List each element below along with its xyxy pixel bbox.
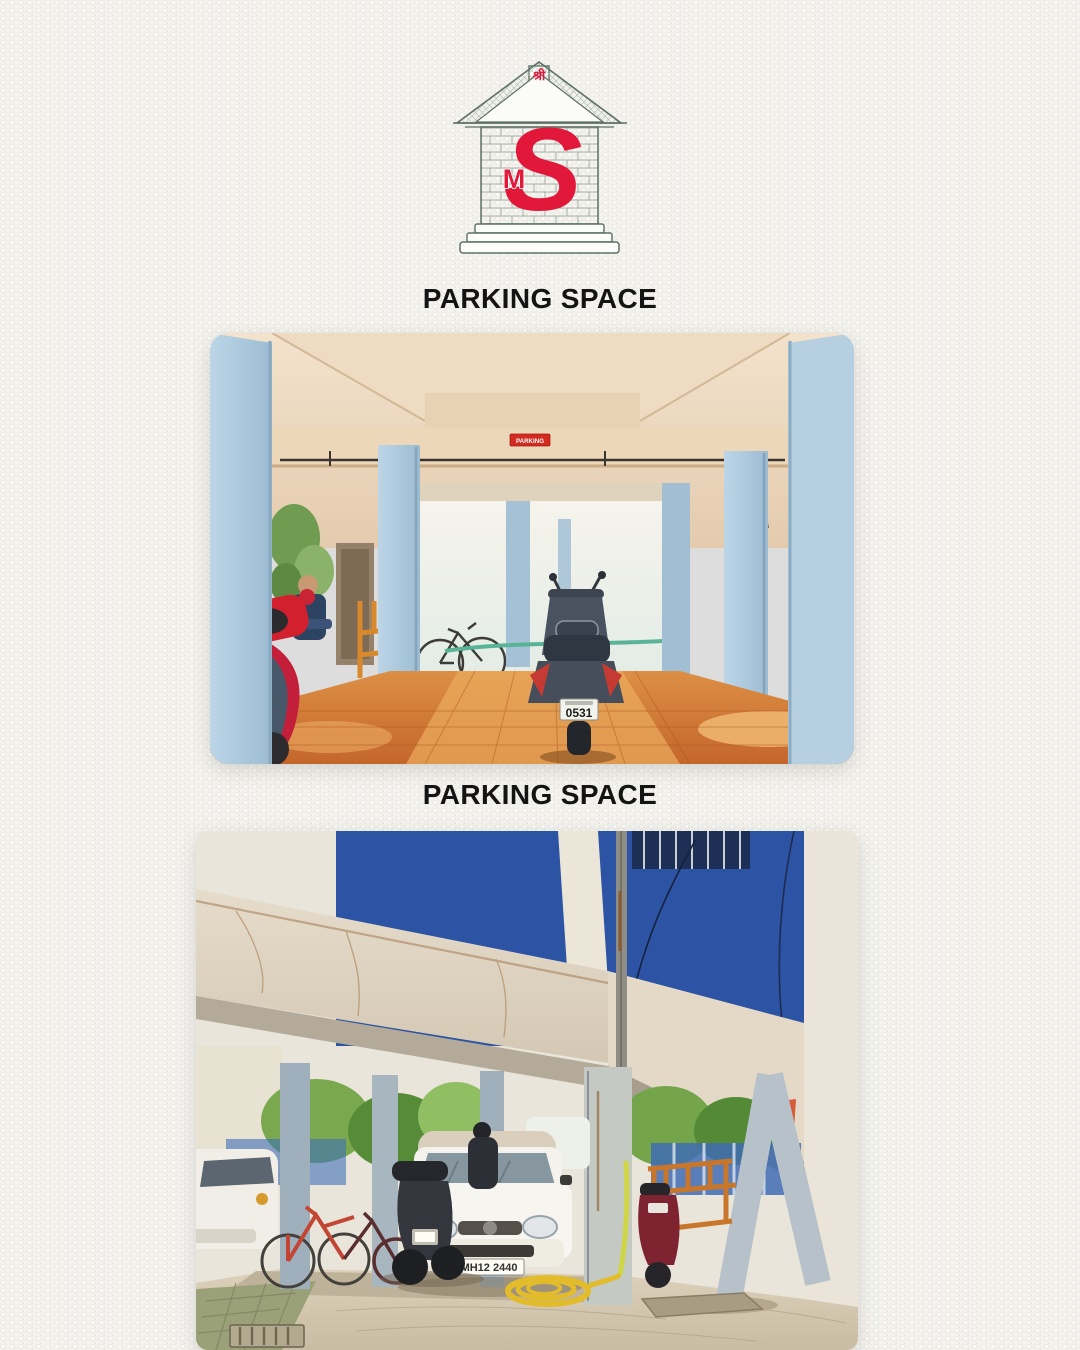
parking-sign-label: PARKING (516, 438, 544, 445)
scooter-license-plate: 0531 (566, 706, 593, 720)
parking-sign: PARKING (510, 434, 550, 446)
white-sedan (196, 1149, 278, 1249)
logo-shri-text: श्री (532, 68, 546, 83)
photo-parking-interior: PARKING (210, 333, 854, 764)
heading-parking-space-1: PARKING SPACE (0, 283, 1080, 315)
logo-graphic: श्री S M (451, 60, 629, 256)
logo: श्री S M (451, 60, 629, 256)
back-wall (390, 493, 680, 683)
logo-monogram-m: M (503, 164, 526, 194)
car-license-plate: MH12 2440 (461, 1262, 518, 1274)
parking-space-poster: श्री S M PARKING SPACE (0, 0, 1080, 1350)
logo-monogram: S M (503, 104, 583, 236)
photo-parking-exterior: MH12 2440 (196, 831, 858, 1350)
heading-parking-space-2: PARKING SPACE (0, 779, 1080, 811)
